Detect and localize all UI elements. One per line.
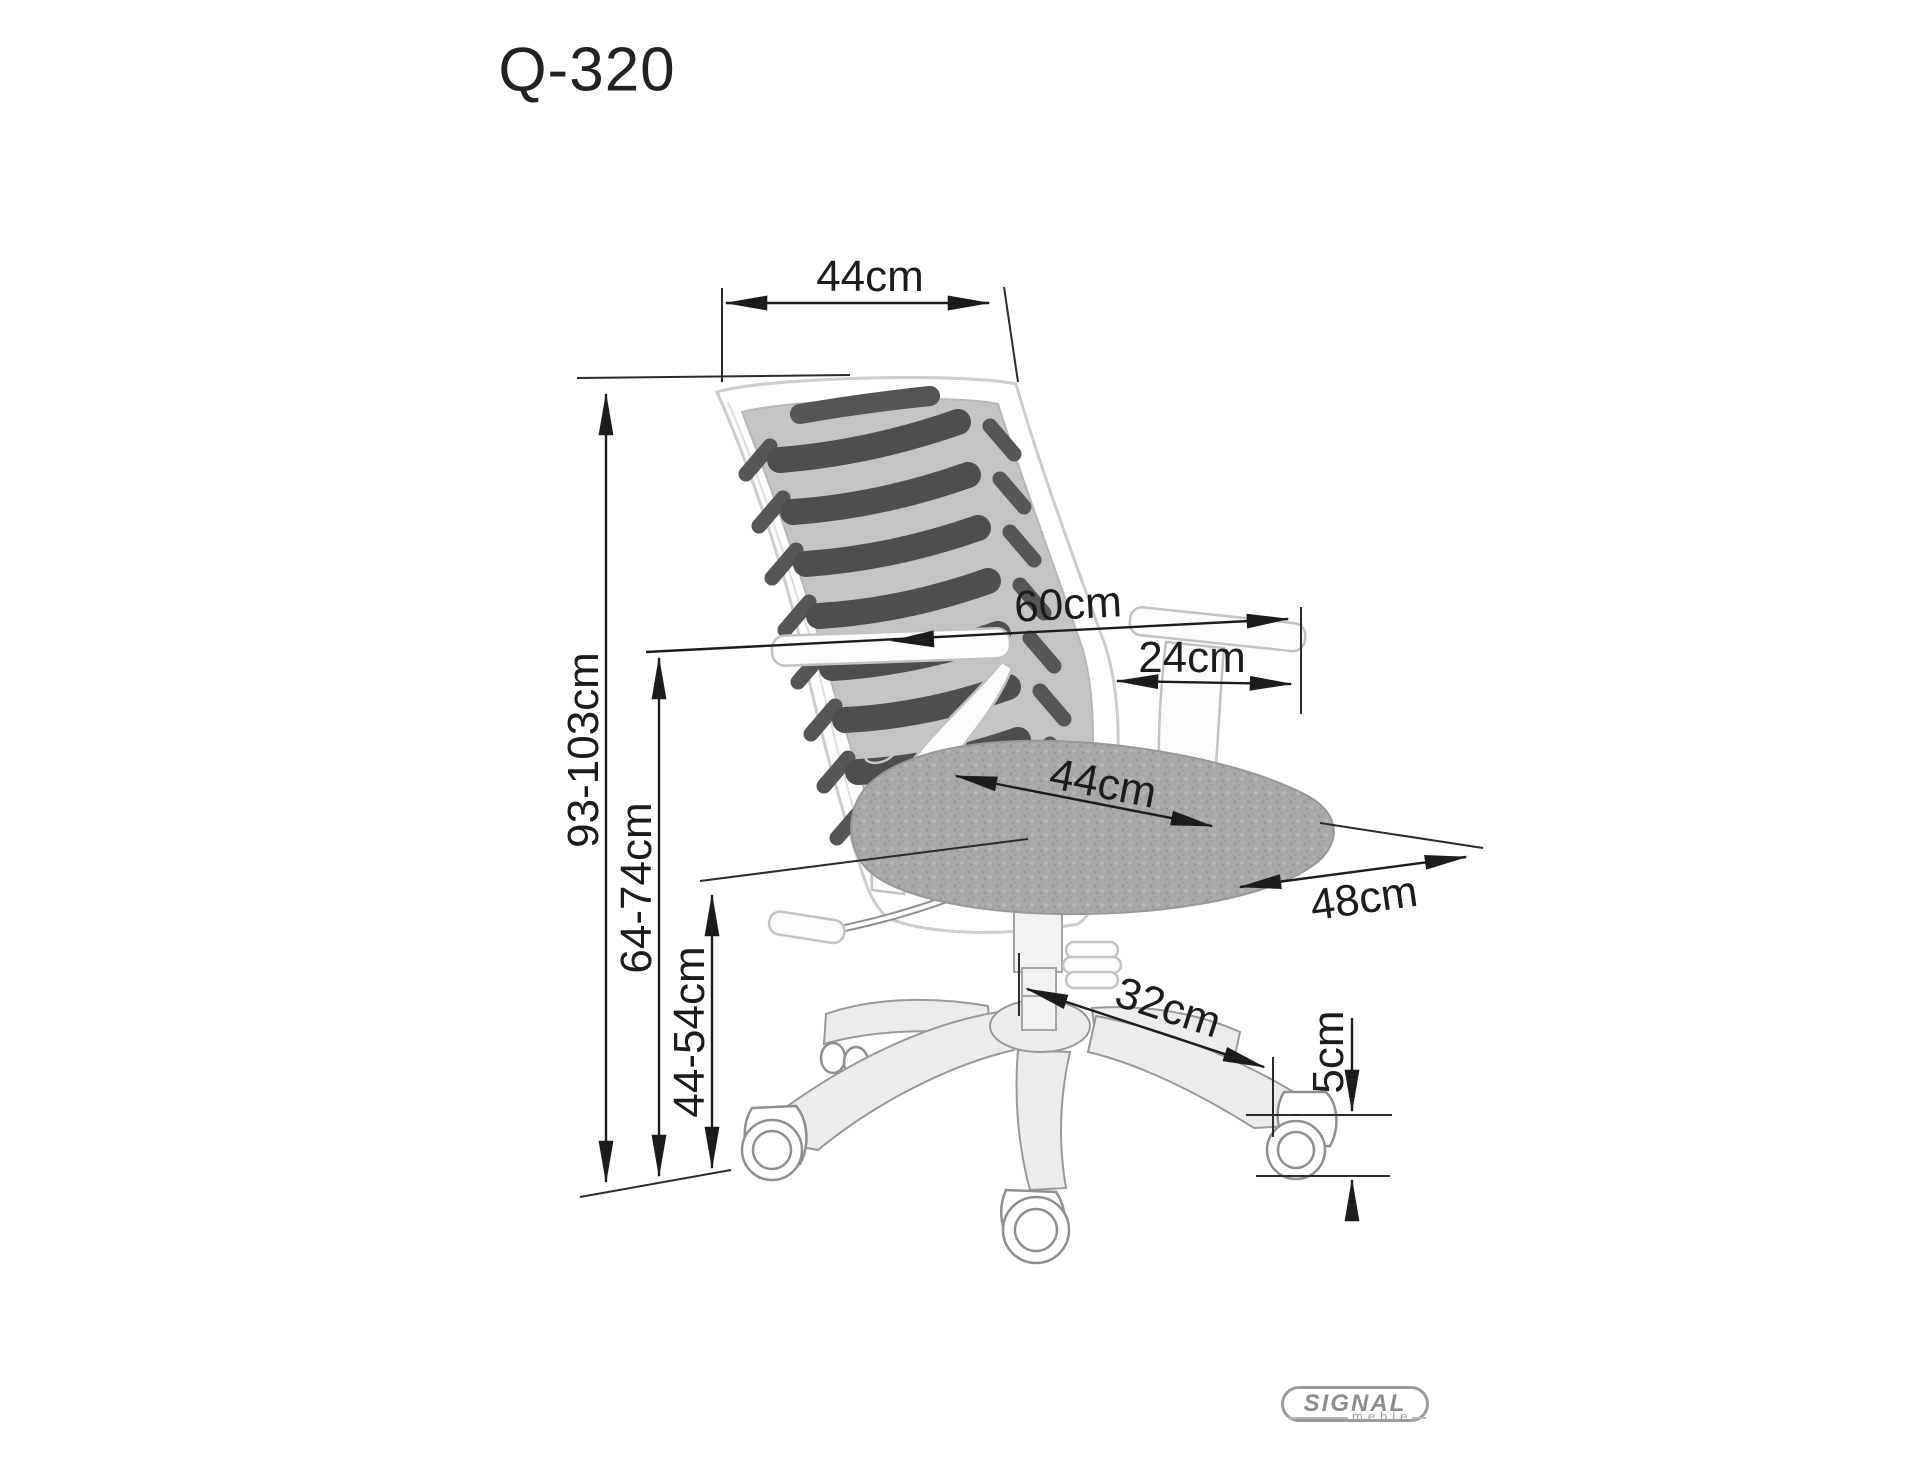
product-dimension-sheet: Q-320 44cm 93-103cm 64-74cm 44-54cm 60cm… [0,0,1920,1469]
dim-label-armrest-length: 24cm [1138,636,1246,680]
logo-rule-right [1412,1417,1426,1419]
dim-label-armrest-height: 64-74cm [615,802,659,973]
dim-label-caster-size: 5cm [1307,1010,1351,1093]
ref-line-backrest-top [577,375,850,378]
page-title: Q-320 [498,35,675,106]
dim-label-overall-height: 93-103cm [562,652,606,848]
brand-logo-subtitle: meble [1352,1410,1412,1423]
dim-label-backrest-width: 44cm [816,255,924,299]
chair-art [717,378,1336,1263]
chair-base [774,996,1300,1190]
ref-line-floor [580,1170,731,1197]
dim-label-seat-height: 44-54cm [668,946,712,1117]
logo-rule-left [1288,1417,1348,1419]
chair-technical-drawing [0,0,1920,1469]
dim-label-overall-width: 60cm [1013,580,1123,630]
